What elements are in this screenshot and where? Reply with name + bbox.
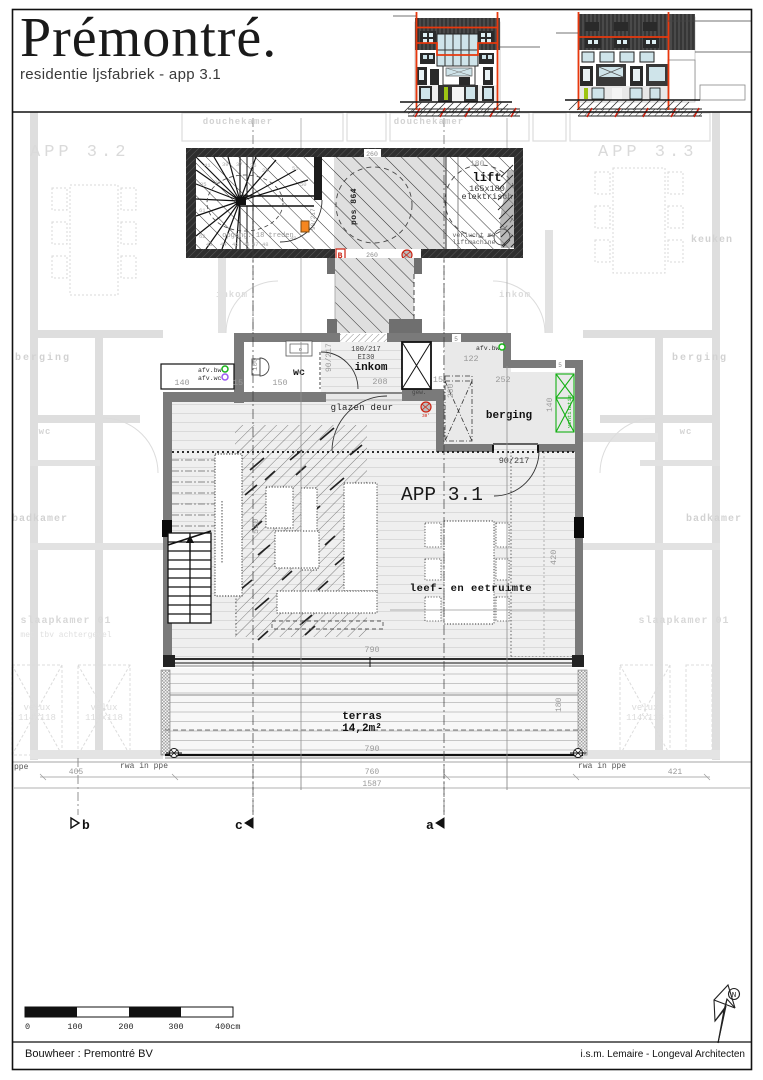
- svg-text:405: 405: [69, 768, 84, 777]
- svg-text:260: 260: [366, 252, 378, 259]
- svg-text:slaapkamer 01: slaapkamer 01: [638, 615, 729, 627]
- svg-text:790: 790: [364, 645, 379, 655]
- svg-text:liftmachine: liftmachine: [453, 239, 496, 246]
- svg-text:30: 30: [214, 179, 221, 186]
- svg-text:114x118: 114x118: [18, 713, 56, 723]
- svg-text:15: 15: [233, 378, 243, 388]
- svg-text:b: b: [82, 818, 90, 833]
- svg-text:420: 420: [549, 550, 559, 565]
- svg-text:Bouwheer : Premontré BV: Bouwheer : Premontré BV: [25, 1048, 153, 1060]
- svg-text:velux: velux: [631, 703, 658, 713]
- svg-text:wc: wc: [293, 368, 305, 379]
- svg-text:rwa in ppe: rwa in ppe: [120, 762, 168, 771]
- svg-text:afv.bw: afv.bw: [198, 367, 222, 374]
- svg-text:APP 3.1: APP 3.1: [401, 484, 483, 506]
- svg-text:140: 140: [174, 378, 189, 388]
- svg-text:14,2m²: 14,2m²: [342, 723, 382, 735]
- svg-text:41: 41: [204, 162, 211, 169]
- svg-text:200: 200: [118, 1022, 133, 1032]
- svg-text:rwa in ppe: rwa in ppe: [578, 762, 626, 771]
- svg-text:15: 15: [433, 375, 443, 385]
- svg-text:51: 51: [292, 165, 299, 172]
- svg-text:o: o: [299, 347, 302, 353]
- svg-text:90/217: 90/217: [325, 343, 334, 372]
- svg-text:badkamer: badkamer: [12, 513, 68, 525]
- svg-text:wc: wc: [39, 427, 52, 437]
- svg-text:velux: velux: [90, 703, 117, 713]
- svg-text:opgang: 18 treden: opgang: 18 treden: [222, 232, 293, 240]
- svg-text:61: 61: [199, 207, 206, 214]
- svg-text:berging: berging: [486, 410, 532, 422]
- svg-text:200: 200: [447, 383, 456, 398]
- svg-text:0: 0: [25, 1022, 30, 1032]
- svg-text:100/217: 100/217: [351, 346, 380, 354]
- svg-text:5: 5: [558, 362, 562, 369]
- svg-text:N: N: [732, 992, 737, 1000]
- svg-text:37: 37: [236, 161, 243, 168]
- svg-text:26: 26: [262, 167, 269, 174]
- svg-text:43: 43: [206, 241, 213, 248]
- svg-text:114x118: 114x118: [626, 713, 664, 723]
- svg-text:inkom: inkom: [354, 362, 387, 374]
- svg-text:inkom: inkom: [499, 290, 531, 300]
- svg-text:berging: berging: [672, 352, 728, 364]
- svg-text:slaapkamer 01: slaapkamer 01: [20, 615, 111, 627]
- svg-text:afv.bw: afv.bw: [476, 345, 500, 352]
- svg-text:APP 3.2: APP 3.2: [30, 143, 129, 162]
- svg-text:50: 50: [300, 181, 307, 188]
- svg-text:APP 3.3: APP 3.3: [598, 143, 697, 162]
- svg-text:400cm: 400cm: [215, 1022, 241, 1032]
- svg-text:velux: velux: [23, 703, 50, 713]
- svg-text:5: 5: [454, 336, 458, 343]
- svg-text:790: 790: [364, 744, 379, 754]
- svg-text:252: 252: [495, 375, 510, 385]
- svg-text:afv.wc: afv.wc: [198, 375, 222, 382]
- svg-text:verlucht me: verlucht me: [453, 232, 496, 239]
- svg-text:90/217: 90/217: [310, 208, 317, 230]
- svg-text:1587: 1587: [362, 780, 381, 789]
- svg-text:100: 100: [67, 1022, 82, 1032]
- svg-text:520: 520: [251, 519, 261, 534]
- svg-text:EI30: EI30: [358, 354, 375, 362]
- svg-text:180: 180: [470, 160, 485, 169]
- svg-text:wc: wc: [680, 427, 693, 437]
- svg-text:90/217: 90/217: [499, 456, 530, 466]
- svg-text:glazen deur: glazen deur: [331, 403, 394, 413]
- svg-text:260: 260: [366, 151, 378, 158]
- svg-text:residentie ljsfabriek - app 3.: residentie ljsfabriek - app 3.1: [20, 66, 221, 83]
- svg-text:208: 208: [372, 377, 387, 387]
- svg-text:terras: terras: [342, 711, 382, 723]
- svg-text:122: 122: [463, 354, 478, 364]
- svg-text:gew.: gew.: [412, 389, 426, 396]
- svg-text:pos 864: pos 864: [350, 188, 359, 225]
- svg-text:45: 45: [232, 241, 239, 248]
- svg-text:180: 180: [555, 697, 564, 712]
- svg-text:Prémontré.: Prémontré.: [20, 7, 277, 69]
- svg-text:44: 44: [220, 241, 227, 248]
- svg-text:114x118: 114x118: [85, 713, 123, 723]
- svg-text:ppe: ppe: [14, 763, 29, 772]
- svg-text:c: c: [235, 818, 243, 833]
- svg-text:760: 760: [365, 768, 380, 777]
- svg-text:30': 30': [422, 413, 430, 419]
- svg-text:berging: berging: [15, 352, 71, 364]
- svg-text:62: 62: [199, 233, 206, 240]
- svg-text:35: 35: [200, 181, 207, 188]
- svg-text:ventilatie: ventilatie: [566, 395, 573, 428]
- svg-text:i.s.m. Lemaire - Longeval Arch: i.s.m. Lemaire - Longeval Architecten: [580, 1049, 745, 1060]
- svg-text:douchekamer: douchekamer: [203, 117, 273, 127]
- svg-text:140: 140: [546, 397, 555, 412]
- svg-text:39: 39: [222, 161, 229, 168]
- svg-text:421: 421: [668, 768, 683, 777]
- svg-text:badkamer: badkamer: [686, 513, 742, 525]
- svg-text:300: 300: [168, 1022, 183, 1032]
- svg-text:leef- en eetruimte: leef- en eetruimte: [410, 583, 532, 595]
- svg-text:48: 48: [262, 241, 269, 248]
- svg-text:46: 46: [243, 241, 250, 248]
- svg-text:a: a: [426, 818, 434, 833]
- svg-text:150: 150: [272, 378, 287, 388]
- svg-text:keuken: keuken: [691, 234, 733, 246]
- svg-text:lift: lift: [473, 171, 502, 185]
- svg-text:douchekamer: douchekamer: [394, 117, 464, 127]
- svg-text:met tbv achtergevel: met tbv achtergevel: [20, 631, 111, 640]
